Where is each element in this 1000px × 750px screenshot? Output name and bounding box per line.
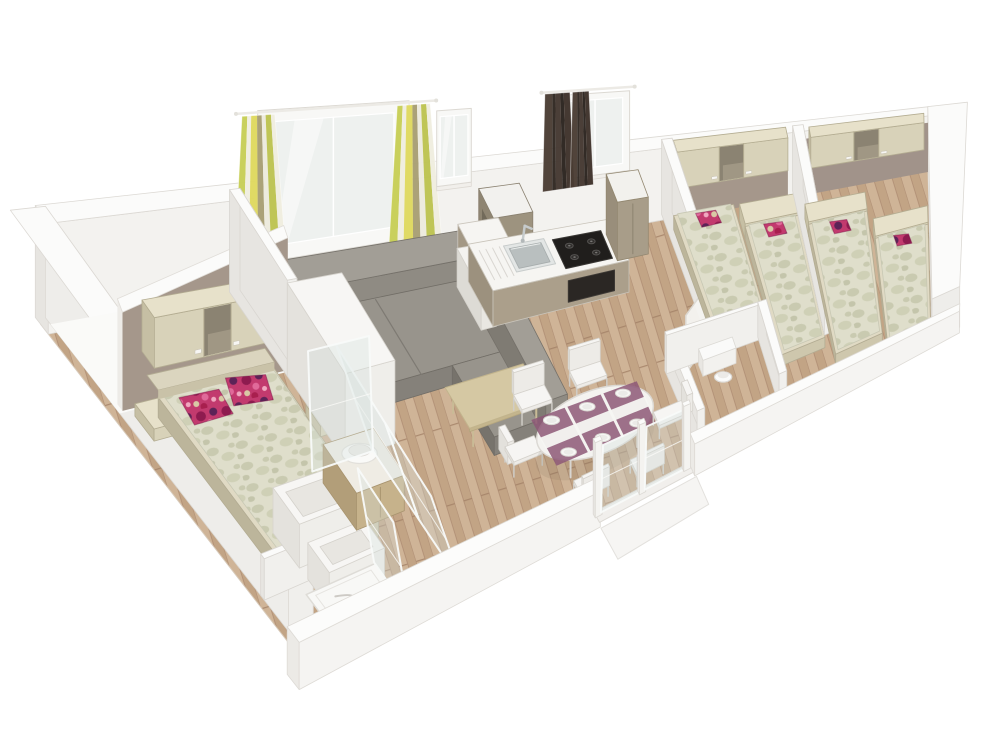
kitchen-curtain-1 <box>543 92 575 192</box>
living-curtain-right <box>389 104 442 252</box>
kitchen-curtain-2 <box>570 91 593 188</box>
right-end-wall <box>928 102 968 342</box>
floor-plan <box>0 0 1000 750</box>
hall-window <box>437 108 472 190</box>
entrance-door-post-3 <box>682 400 690 472</box>
kitchen-tall-unit <box>606 170 648 261</box>
floor-plan-rendering <box>0 0 1000 750</box>
bathroom-glass-3 <box>308 336 373 472</box>
